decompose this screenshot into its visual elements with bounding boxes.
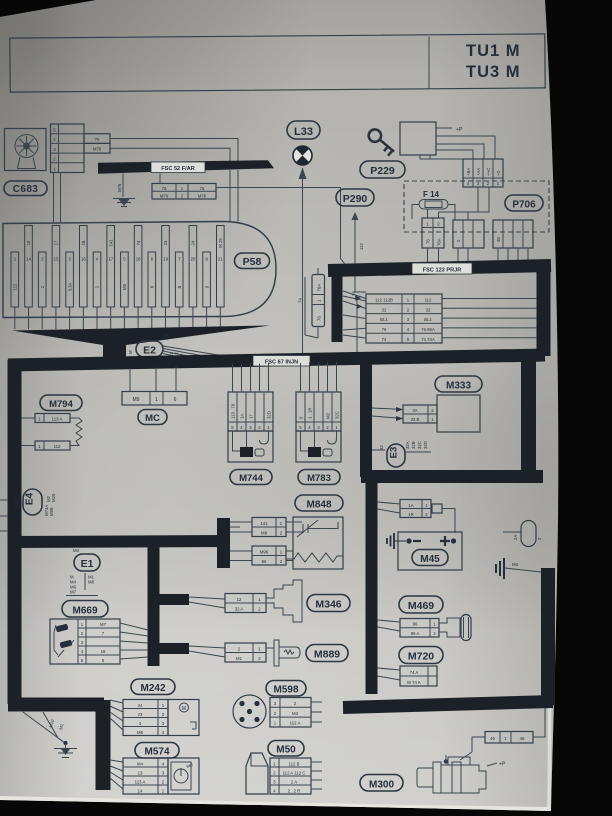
svg-text:M469: M469 [408,600,434,612]
svg-text:C683: C683 [13,184,39,195]
svg-text:76A: 76A [437,238,442,246]
svg-text:M10: M10 [14,499,19,508]
svg-text:E3: E3 [389,447,400,459]
svg-text:19: 19 [163,257,168,262]
svg-text:M76: M76 [198,194,207,199]
svg-text:M3: M3 [512,562,519,567]
svg-text:24: 24 [191,240,196,245]
svg-text:14: 14 [26,257,31,262]
svg-text:13: 13 [138,770,143,775]
svg-text:2 A: 2 A [291,779,297,784]
svg-text:FSC 123 PRJR: FSC 123 PRJR [423,268,462,274]
svg-text:17: 17 [249,414,254,419]
svg-text:20: 20 [191,257,196,262]
svg-text:112 A: 112 A [290,721,301,726]
svg-text:76: 76 [162,186,167,191]
svg-text:M: M [128,350,133,354]
svg-text:M7: M7 [70,590,77,595]
svg-text:76: 76 [200,186,205,191]
svg-text:2A: 2A [513,535,518,540]
svg-text:M333: M333 [446,381,471,392]
svg-text:TU3 M: TU3 M [466,63,521,81]
svg-text:113 A: 113 A [135,779,146,784]
svg-text:+AC: +AC [486,168,491,176]
svg-text:M669: M669 [72,606,97,617]
svg-text:12: 12 [237,597,242,602]
svg-text:18: 18 [101,649,106,654]
svg-text:E4: E4 [25,492,36,505]
svg-text:+P: +P [456,127,463,133]
svg-text:112 A 112 C: 112 A 112 C [283,770,306,775]
svg-text:E2: E2 [143,345,156,357]
svg-text:48: 48 [496,237,501,242]
svg-text:112 B: 112 B [289,761,300,766]
svg-text:74: 74 [136,240,141,245]
svg-text:76: 76 [382,327,387,332]
svg-text:M4: M4 [137,761,144,766]
svg-text:M25: M25 [51,493,56,502]
svg-text:15: 15 [54,257,59,262]
svg-text:+P: +P [499,762,506,768]
svg-text:M1: M1 [236,656,243,661]
svg-text:M848: M848 [306,500,331,511]
svg-text:17: 17 [108,257,113,262]
svg-text:46: 46 [520,736,525,741]
svg-text:M744: M744 [239,473,263,484]
svg-text:M: M [182,706,186,712]
svg-text:M300: M300 [369,780,394,791]
svg-text:M76: M76 [160,194,169,199]
svg-text:23: 23 [138,712,143,717]
svg-text:32: 32 [382,307,387,312]
svg-text:76.96A: 76.96A [421,327,435,332]
svg-text:2 . 2 R: 2 . 2 R [288,788,301,793]
svg-text:32 A: 32 A [235,606,244,611]
svg-text:L33: L33 [294,126,313,138]
svg-text:112: 112 [13,283,18,290]
svg-text:32: 32 [379,445,384,450]
svg-text:141: 141 [260,521,268,526]
svg-text:TU1 M: TU1 M [466,42,521,60]
svg-text:B: B [177,285,182,288]
svg-text:32 B: 32 B [411,417,420,422]
svg-text:32C: 32C [335,411,340,419]
svg-text:M242: M242 [140,683,165,694]
svg-text:24: 24 [138,703,143,708]
svg-text:M3: M3 [292,711,299,716]
svg-text:113 . 76: 113 . 76 [231,403,236,419]
svg-text:M783: M783 [307,473,331,484]
svg-text:M598: M598 [273,685,298,696]
svg-text:1R: 1R [408,512,414,517]
svg-text:14: 14 [138,788,143,793]
svg-text:1A: 1A [240,414,245,419]
svg-text:M8: M8 [261,531,268,536]
svg-text:M7: M7 [100,622,107,627]
svg-text:M76: M76 [117,183,122,192]
svg-text:74: 74 [382,337,387,342]
svg-text:M 25: M 25 [218,238,223,248]
svg-text:74.74A: 74.74A [421,337,435,342]
svg-text:MC: MC [145,413,160,424]
svg-text:96: 96 [413,622,418,627]
svg-text:76A: 76A [317,284,322,292]
svg-text:76: 76 [95,137,100,142]
svg-text:P290: P290 [343,193,368,205]
svg-text:FSC 52 F/AR: FSC 52 F/AR [161,166,195,172]
svg-text:M346: M346 [315,599,341,611]
svg-text:32D: 32D [267,411,272,419]
svg-text:M8: M8 [88,580,95,585]
svg-text:18: 18 [81,240,86,245]
svg-text:32: 32 [426,307,431,312]
svg-text:16: 16 [26,240,31,245]
svg-text:P58: P58 [243,256,262,268]
svg-text:1: 1 [155,397,158,403]
svg-text:74: 74 [298,298,303,303]
svg-text:M5: M5 [164,333,169,340]
svg-text:1 . 1R: 1 . 1R [308,408,313,419]
svg-text:112: 112 [425,298,432,303]
svg-text:32B: 32B [411,441,416,449]
svg-text:BL1: BL1 [380,317,388,322]
svg-text:112: 112 [359,243,364,250]
svg-text:M50: M50 [276,745,296,756]
svg-text:FSC 67 INJN: FSC 67 INJN [265,360,298,366]
svg-text:1A: 1A [408,503,413,508]
svg-text:3.3A: 3.3A [67,282,72,291]
svg-text:96: 96 [262,559,267,564]
svg-text:32A: 32A [405,441,410,449]
svg-text:M9: M9 [133,397,140,403]
svg-text:96 A: 96 A [411,631,420,636]
svg-text:M2: M2 [326,412,331,419]
svg-text:F 14: F 14 [423,190,440,199]
svg-text:6: 6 [174,397,177,403]
svg-text:74 A: 74 A [410,670,419,675]
svg-text:P229: P229 [370,165,395,177]
svg-text:23: 23 [163,240,168,245]
svg-text:M45: M45 [420,554,440,565]
svg-text:E1: E1 [81,558,94,570]
svg-text:M76: M76 [93,147,102,152]
svg-text:16: 16 [81,257,86,262]
svg-text:46: 46 [490,736,495,741]
svg-text:M6: M6 [137,730,144,735]
svg-text:BL1: BL1 [424,317,432,322]
svg-text:M 74 A: M 74 A [407,680,421,685]
svg-text:74: 74 [351,291,356,296]
svg-text:M794: M794 [49,399,73,410]
svg-text:M96: M96 [49,507,54,516]
svg-text:18: 18 [136,257,141,262]
svg-text:112: 112 [54,444,61,449]
svg-text:M96: M96 [260,550,269,555]
svg-text:76: 76 [317,316,322,321]
svg-text:32D: 32D [423,441,428,449]
svg-text:113 A: 113 A [52,417,63,422]
svg-text:P706: P706 [512,200,536,211]
svg-text:+AA: +AA [476,168,481,176]
svg-text:141: 141 [108,239,113,247]
svg-text:76: 76 [426,239,431,244]
svg-text:3A: 3A [412,408,417,413]
svg-text:21: 21 [218,257,223,262]
svg-text:M5: M5 [122,283,127,290]
svg-text:+BA: +BA [466,168,471,176]
svg-text:17: 17 [54,240,59,245]
svg-text:M3: M3 [73,548,80,553]
svg-text:M720: M720 [408,651,434,663]
svg-text:112 112B: 112 112B [375,298,393,303]
svg-text:M889: M889 [314,649,340,661]
svg-text:+D: +D [496,170,501,176]
svg-text:32C: 32C [417,441,422,449]
svg-text:M574: M574 [144,747,169,758]
